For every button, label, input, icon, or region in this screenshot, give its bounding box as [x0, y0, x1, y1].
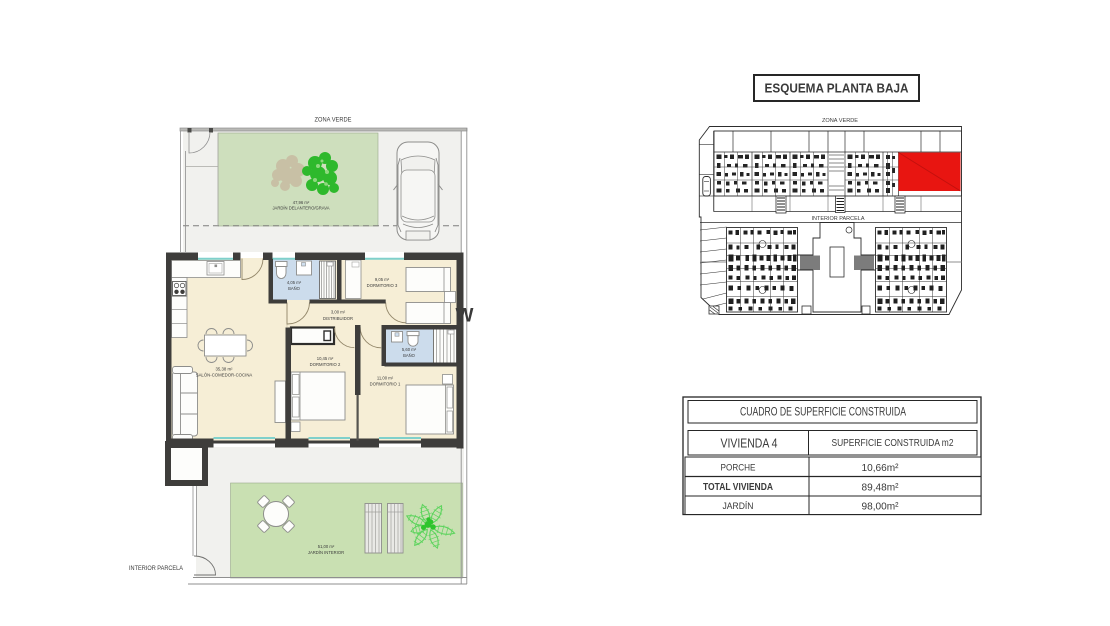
svg-text:DISTRIBUIDOR: DISTRIBUIDOR — [323, 316, 353, 321]
svg-text:89,48m²: 89,48m² — [862, 483, 900, 494]
svg-text:VIVIENDA 4: VIVIENDA 4 — [721, 436, 778, 451]
svg-text:47,96 m²: 47,96 m² — [293, 200, 310, 205]
svg-text:DORMITORIO 1: DORMITORIO 1 — [370, 382, 401, 387]
svg-text:JARDÍN: JARDÍN — [723, 501, 754, 511]
svg-text:SALÓN-COMEDOR-COCINA: SALÓN-COMEDOR-COCINA — [196, 373, 253, 378]
svg-text:INTERIOR PARCELA: INTERIOR PARCELA — [129, 565, 184, 572]
svg-text:BAÑO: BAÑO — [403, 353, 416, 358]
svg-text:JARDÍN DELANTERO/GRAVA: JARDÍN DELANTERO/GRAVA — [272, 206, 329, 211]
svg-text:10,66m²: 10,66m² — [862, 463, 900, 474]
svg-text:ZONA VERDE: ZONA VERDE — [315, 117, 353, 124]
svg-text:JARDÍN INTERIOR: JARDÍN INTERIOR — [308, 550, 344, 555]
svg-text:4,05 m²: 4,05 m² — [287, 280, 302, 285]
svg-text:BAÑO: BAÑO — [288, 286, 301, 291]
svg-text:INTERIOR PARCELA: INTERIOR PARCELA — [812, 216, 865, 222]
svg-text:ZONA VERDE: ZONA VERDE — [822, 118, 858, 124]
svg-text:PORCHE: PORCHE — [721, 463, 756, 473]
svg-text:DORMITORIO 2: DORMITORIO 2 — [310, 362, 341, 367]
svg-text:35,38 m²: 35,38 m² — [216, 367, 234, 372]
svg-text:5,60 m²: 5,60 m² — [402, 347, 417, 352]
svg-text:9,05 m²: 9,05 m² — [375, 277, 390, 282]
svg-text:51,00 m²: 51,00 m² — [318, 544, 335, 549]
svg-text:10,45 m²: 10,45 m² — [317, 356, 334, 361]
svg-text:11,00 m²: 11,00 m² — [377, 376, 394, 381]
svg-text:CUADRO DE SUPERFICIE CONSTRUID: CUADRO DE SUPERFICIE CONSTRUIDA — [740, 405, 906, 419]
svg-text:3,00 m²: 3,00 m² — [331, 310, 346, 315]
svg-text:DORMITORIO 3: DORMITORIO 3 — [367, 283, 398, 288]
svg-text:W: W — [456, 306, 474, 327]
svg-text:98,00m²: 98,00m² — [862, 502, 900, 513]
svg-text:TOTAL VIVIENDA: TOTAL VIVIENDA — [703, 482, 773, 493]
svg-text:ESQUEMA PLANTA BAJA: ESQUEMA PLANTA BAJA — [765, 82, 909, 96]
svg-text:SUPERFICIE CONSTRUIDA m2: SUPERFICIE CONSTRUIDA m2 — [832, 437, 954, 449]
